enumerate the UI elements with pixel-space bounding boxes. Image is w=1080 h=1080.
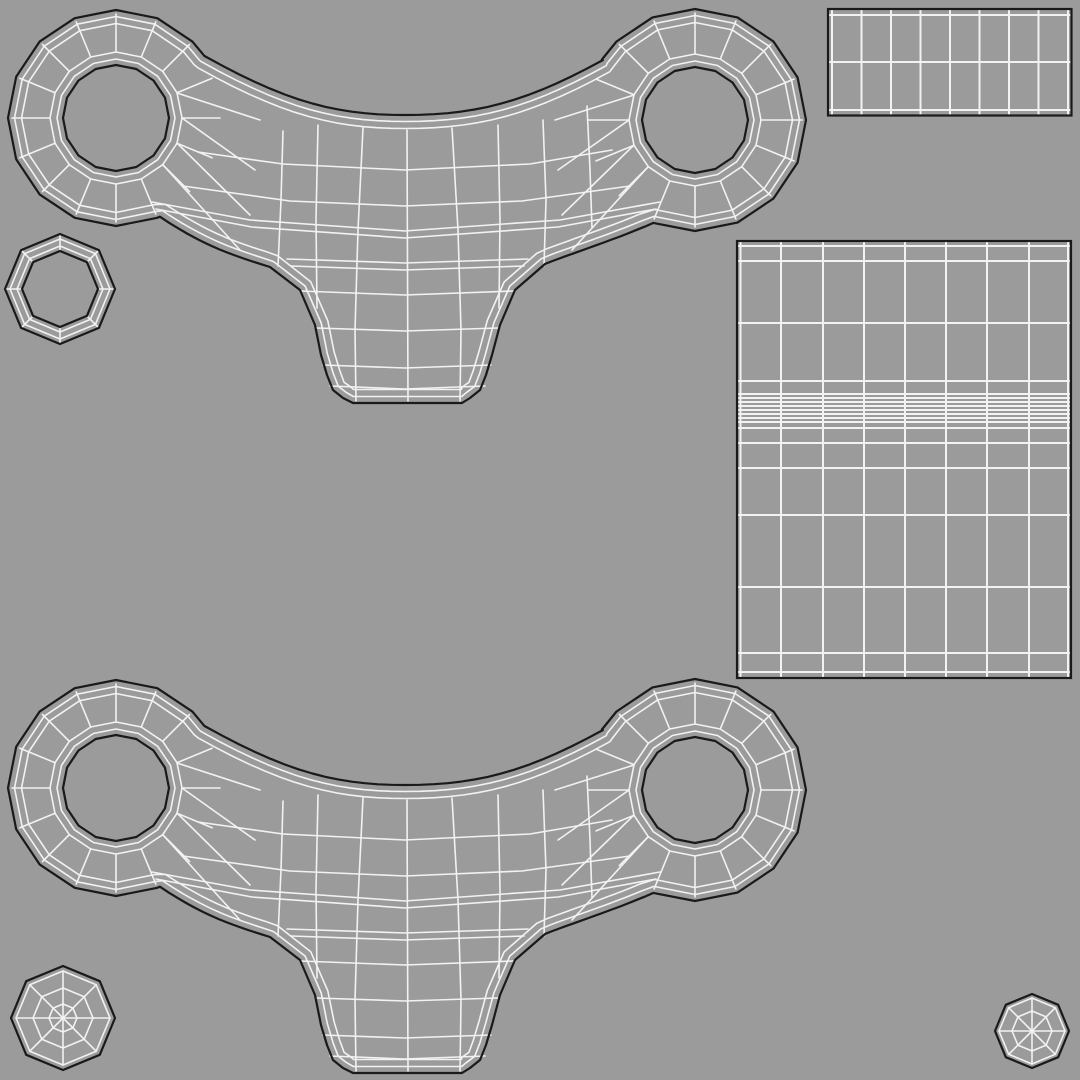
boss-spoke (596, 749, 634, 765)
boss-spoke (654, 181, 670, 219)
mesh-edge (163, 165, 240, 250)
mesh-edge (278, 131, 283, 266)
boss-spoke (43, 835, 70, 862)
web-spoke (1009, 1008, 1032, 1031)
boss-spoke (720, 181, 736, 219)
mesh-edge (177, 763, 260, 790)
uv-island-octagon-web-left (11, 966, 115, 1070)
mesh-edge (355, 128, 363, 401)
boss-spoke (619, 44, 648, 73)
boss-spoke (76, 849, 91, 884)
mesh-edge (182, 788, 255, 840)
boss-spoke (720, 691, 736, 729)
boss-spoke (596, 815, 634, 831)
boss-spoke (43, 715, 70, 742)
mesh-edge (278, 801, 283, 936)
mesh-edge (198, 150, 612, 170)
mesh-edge (543, 120, 546, 266)
uv-island-octagon-ring (5, 234, 115, 344)
mesh-edge (323, 1035, 491, 1038)
uv-island-grid-strip (828, 9, 1072, 116)
grid-wires (828, 9, 1072, 116)
boss-spoke (742, 167, 771, 196)
boss-spoke (619, 714, 648, 743)
boss-right-mesh (588, 13, 802, 227)
hole-outline (63, 735, 169, 841)
boss-spoke (177, 78, 212, 93)
boss-spoke (163, 45, 190, 72)
hole-outline (642, 737, 748, 843)
mesh-edge (587, 776, 592, 898)
grid-wires (737, 241, 1071, 678)
boss-spoke (596, 145, 634, 161)
mesh-edge (558, 120, 629, 170)
boss-spoke (756, 79, 794, 95)
mesh-edge (156, 879, 656, 908)
mesh-edge (572, 167, 648, 250)
uv-wireframe-svg (0, 0, 1080, 1080)
mesh-edge (316, 125, 318, 308)
mesh-edge (355, 798, 363, 1071)
mesh-edge (572, 837, 648, 920)
mesh-edge (555, 765, 634, 790)
clamp-mesh-wires (12, 13, 802, 401)
uv-island-clamp-top (8, 9, 806, 403)
boss-spoke (756, 749, 794, 765)
mesh-edge (498, 795, 500, 978)
boss-spoke (20, 813, 55, 828)
mesh-edge (182, 118, 255, 170)
boss-spoke (43, 165, 70, 192)
boss-spoke (654, 691, 670, 729)
mesh-edge (198, 820, 612, 840)
mesh-edge (163, 835, 240, 920)
boss-spoke (141, 22, 156, 57)
uv-island-octagon-web-right (995, 994, 1069, 1068)
boss-spoke (177, 143, 212, 158)
mesh-edge (177, 93, 260, 120)
mesh-edge (562, 145, 634, 215)
boss-spoke (141, 179, 156, 214)
mesh-edge (316, 795, 318, 978)
boss-spoke (742, 44, 771, 73)
boss-spoke (76, 179, 91, 214)
ring-outline (22, 251, 98, 327)
boss-spoke (742, 837, 771, 866)
web-spoke (1032, 1008, 1055, 1031)
hole-edge-loop (57, 59, 175, 177)
boss-spoke (163, 715, 190, 742)
mesh-edge (452, 798, 461, 1071)
mesh-edge (587, 106, 592, 228)
mesh-edge (543, 790, 546, 936)
hole-edge-loop (636, 731, 754, 849)
boss-spoke (756, 145, 794, 161)
uv-island-clamp-bottom (8, 679, 806, 1073)
uv-layout-canvas (0, 0, 1080, 1080)
hole-edge-loop (57, 729, 175, 847)
clamp-mesh-wires (12, 683, 802, 1071)
mesh-edge (555, 95, 634, 120)
boss-spoke (177, 813, 212, 828)
mesh-edge (558, 790, 629, 840)
mesh-edge (498, 125, 500, 308)
boss-spoke (756, 815, 794, 831)
boss-spoke (76, 22, 91, 57)
boss-spoke (20, 748, 55, 763)
boss-left-mesh (12, 14, 220, 222)
boss-spoke (43, 45, 70, 72)
boss-spoke (20, 143, 55, 158)
boss-spoke (720, 21, 736, 59)
boss-spoke (596, 79, 634, 95)
uv-island-grid-panel (737, 241, 1071, 678)
mesh-edge (562, 815, 634, 885)
boss-spoke (177, 748, 212, 763)
boss-spoke (141, 849, 156, 884)
boss-spoke (20, 78, 55, 93)
mesh-edge (323, 365, 491, 368)
hole-outline (63, 65, 169, 171)
hole-outline (642, 67, 748, 173)
hole-edge-loop (636, 61, 754, 179)
boss-spoke (742, 714, 771, 743)
mesh-edge (452, 128, 461, 401)
boss-spoke (76, 692, 91, 727)
boss-spoke (141, 692, 156, 727)
boss-spoke (720, 851, 736, 889)
web-spoke (1032, 1031, 1055, 1054)
boss-left-mesh (12, 684, 220, 892)
boss-right-mesh (588, 683, 802, 897)
mesh-edge (156, 209, 656, 238)
web-spoke (1009, 1031, 1032, 1054)
boss-spoke (654, 21, 670, 59)
boss-spoke (654, 851, 670, 889)
